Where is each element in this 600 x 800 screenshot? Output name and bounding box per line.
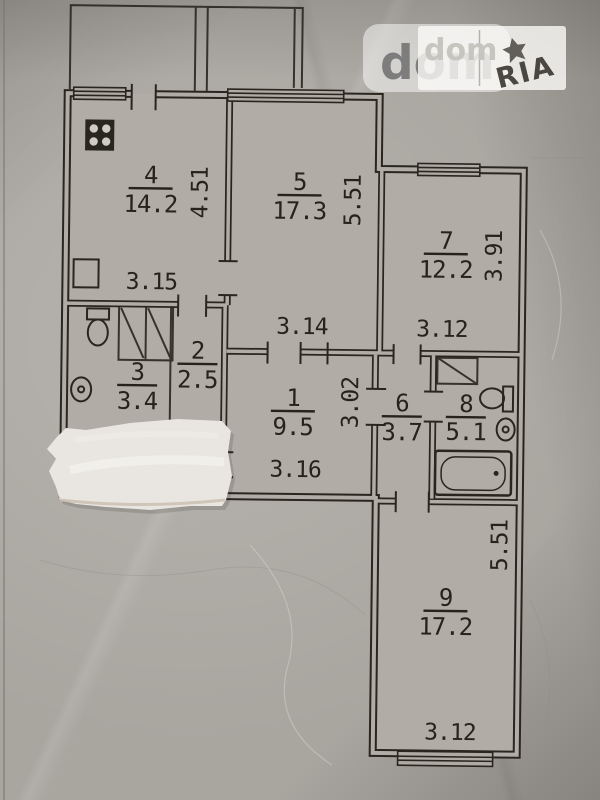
svg-text:4: 4 — [144, 161, 158, 189]
dim-room7-height: 3.91 — [481, 230, 508, 282]
balcony-outline — [70, 5, 303, 92]
stove-icon — [85, 119, 114, 150]
svg-text:1: 1 — [286, 384, 300, 412]
floor-plan: 4 14.2 5 17.3 7 12.2 2 2.5 — [0, 0, 600, 800]
dim-room7-width: 3.12 — [416, 316, 468, 343]
dim-room9-width: 3.12 — [424, 720, 476, 747]
dim-room1-height: 3.02 — [338, 377, 365, 429]
svg-text:12.2: 12.2 — [419, 255, 473, 284]
svg-text:17.2: 17.2 — [418, 612, 472, 641]
dim-room9-height: 5.51 — [487, 519, 514, 571]
room5-window — [228, 89, 344, 102]
svg-text:3.7: 3.7 — [381, 418, 422, 446]
kitchen-window — [74, 87, 126, 100]
dom-overlay-text: dom — [424, 33, 497, 68]
svg-text:6: 6 — [395, 389, 409, 417]
room9-window — [398, 751, 493, 766]
dim-room5-width: 3.14 — [276, 314, 328, 341]
svg-text:17.3: 17.3 — [272, 197, 326, 226]
svg-text:5: 5 — [293, 168, 307, 196]
torn-paper-strip — [47, 419, 235, 514]
svg-text:14.2: 14.2 — [123, 190, 177, 219]
dom-watermark: dom dom RIA — [363, 24, 566, 95]
dim-room5-height: 5.51 — [340, 175, 367, 227]
svg-text:2: 2 — [191, 337, 205, 365]
svg-text:2.5: 2.5 — [177, 365, 218, 393]
svg-text:5.1: 5.1 — [445, 418, 486, 446]
floor-plan-photo: 4 14.2 5 17.3 7 12.2 2 2.5 — [0, 0, 600, 800]
svg-text:3: 3 — [130, 358, 144, 386]
dim-room4-height: 4.51 — [187, 167, 214, 219]
svg-text:9: 9 — [439, 584, 453, 612]
dim-room4-width: 3.15 — [126, 269, 178, 296]
svg-text:3.4: 3.4 — [117, 387, 158, 415]
svg-text:9.5: 9.5 — [272, 413, 313, 441]
dim-room1-width: 3.16 — [269, 457, 321, 484]
svg-text:8: 8 — [459, 390, 473, 418]
room7-window — [418, 163, 480, 176]
svg-text:7: 7 — [439, 227, 453, 255]
